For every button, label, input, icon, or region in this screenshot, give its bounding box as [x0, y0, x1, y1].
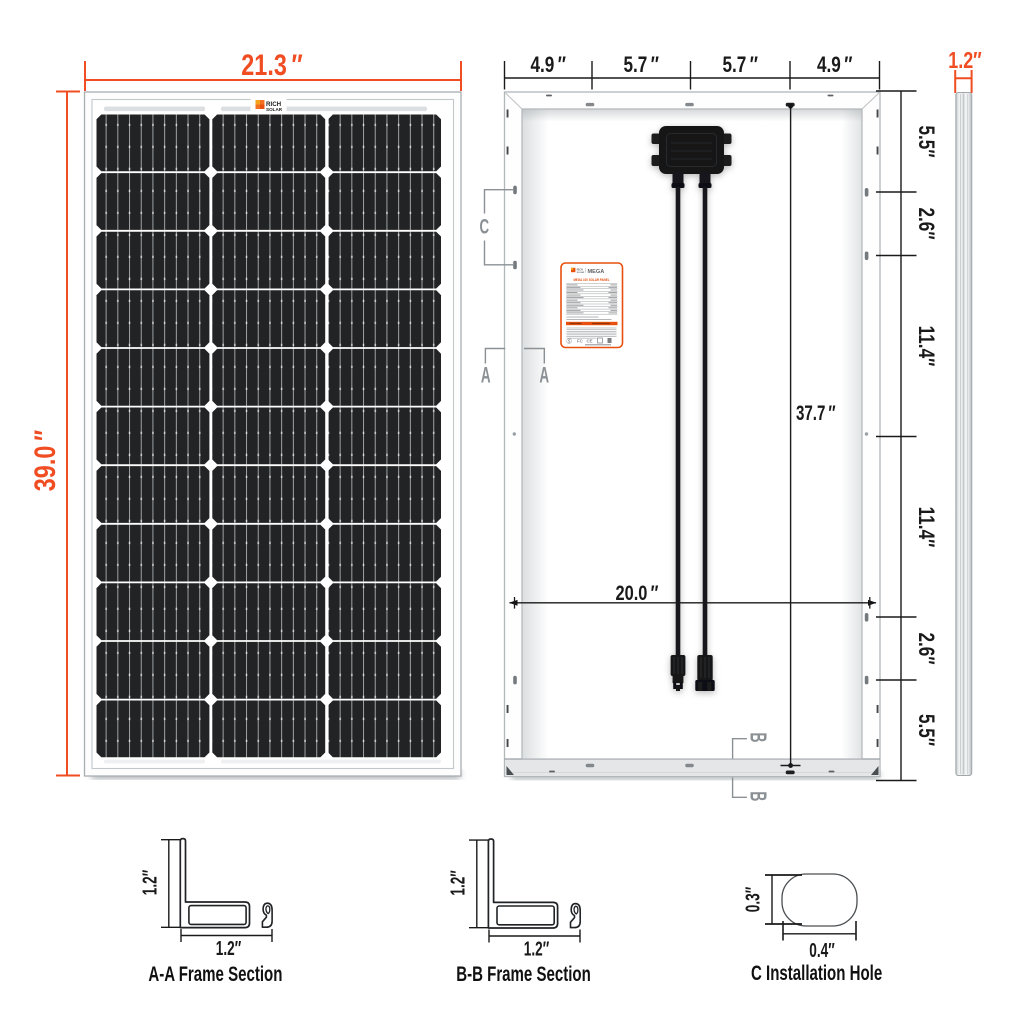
- svg-text:CE: CE: [587, 339, 593, 344]
- svg-text:C: C: [479, 214, 489, 238]
- svg-text:39.0 ″: 39.0 ″: [28, 430, 61, 492]
- svg-text:2.6″: 2.6″: [913, 207, 938, 240]
- svg-text:20.0 ″: 20.0 ″: [616, 581, 659, 604]
- svg-text:1.2″: 1.2″: [216, 937, 241, 959]
- svg-text:11.4″: 11.4″: [913, 507, 938, 548]
- svg-text:5.5″: 5.5″: [913, 125, 938, 158]
- svg-text:A-A Frame Section: A-A Frame Section: [148, 961, 282, 985]
- svg-text:FC: FC: [577, 339, 584, 344]
- svg-text:C Installation Hole: C Installation Hole: [751, 960, 882, 984]
- svg-text:B: B: [744, 791, 769, 801]
- svg-text:0.3″: 0.3″: [742, 887, 764, 912]
- svg-text:1.2″: 1.2″: [447, 870, 469, 895]
- svg-text:5.5″: 5.5″: [913, 714, 938, 747]
- svg-text:11.4″: 11.4″: [913, 326, 938, 367]
- svg-text:B: B: [744, 733, 769, 743]
- svg-text:MEGA: MEGA: [588, 269, 605, 275]
- svg-text:5.7 ″: 5.7 ″: [623, 53, 659, 78]
- svg-text:Ⓢ: Ⓢ: [567, 337, 573, 345]
- svg-text:4.9 ″: 4.9 ″: [817, 53, 853, 78]
- svg-text:B-B Frame Section: B-B Frame Section: [456, 961, 591, 985]
- svg-text:SOLAR: SOLAR: [266, 107, 283, 112]
- svg-text:37.7 ″: 37.7 ″: [796, 400, 836, 424]
- svg-text:SOLAR: SOLAR: [577, 271, 585, 274]
- svg-text:0.4″: 0.4″: [809, 939, 834, 961]
- svg-text:4.9 ″: 4.9 ″: [530, 53, 566, 78]
- svg-text:2.6″: 2.6″: [913, 632, 938, 665]
- svg-text:1.2″: 1.2″: [139, 870, 161, 895]
- svg-text:MEGA 100 SOLAR PANEL: MEGA 100 SOLAR PANEL: [573, 278, 609, 282]
- svg-text:1.2″: 1.2″: [524, 938, 549, 960]
- svg-text:5.7 ″: 5.7 ″: [722, 53, 758, 78]
- svg-text:A: A: [539, 362, 549, 387]
- svg-text:1.2″: 1.2″: [948, 48, 982, 74]
- svg-text:21.3 ″: 21.3 ″: [241, 48, 303, 81]
- svg-text:RICH: RICH: [577, 268, 583, 272]
- svg-text:A: A: [481, 362, 491, 387]
